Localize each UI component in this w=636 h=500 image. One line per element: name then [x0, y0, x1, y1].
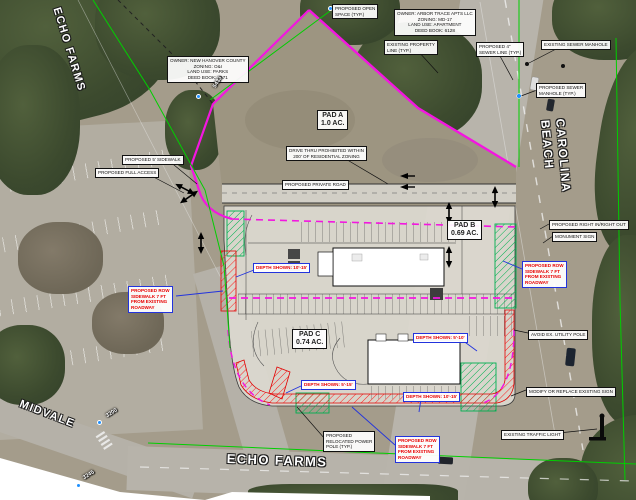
road-name-midvale: MIDVALE [17, 398, 77, 432]
note-row-sidewalk-left: PROPOSED ROW SIDEWALK 7 FT FROM EXISTING… [128, 286, 173, 313]
note-depth-south: DEPTH SHOWN: 10'-15' [403, 392, 460, 402]
note-owner-new-hanover: OWNER: NEW HANOVER COUNTY ZONING: O&I LA… [167, 56, 249, 83]
annotation-layer: PROPOSED OPEN SPACE (TYP.)OWNER: ARBOR T… [0, 0, 636, 500]
road-name-echo-farms-south: ECHO FARMS [226, 451, 327, 471]
label-pad-c: PAD C 0.74 AC. [292, 329, 327, 349]
note-monument-sign: MONUMENT SIGN [552, 232, 597, 242]
address-marker-dot [196, 94, 201, 99]
address-label-3245: 3245 [82, 470, 96, 482]
note-proposed-sewer-manhole: PROPOSED SEWER MANHOLE (TYP.) [536, 83, 586, 98]
note-existing-traffic-light: EXISTING TRAFFIC LIGHT [501, 430, 564, 440]
note-depth-south-west: DEPTH SHOWN: 5'-15' [301, 380, 356, 390]
note-owner-arbor-trace: OWNER: ARBOR TRACE APTS LLC ZONING: MD-1… [394, 9, 476, 36]
note-proposed-5ft-sidewalk: PROPOSED 5' SIDEWALK [122, 155, 184, 165]
note-proposed-private-road: PROPOSED PRIVATE ROAD [282, 180, 349, 190]
note-right-in-right-out: PROPOSED RIGHT IN/RIGHT OUT [549, 220, 629, 230]
note-proposed-sewer-line: PROPOSED 4" SEWER LINE (TYP.) [476, 42, 524, 57]
note-relocated-power-pole: PROPOSED RELOCATED POWER POLE (TYP.) [323, 431, 375, 452]
note-existing-sewer-manhole: EXISTING SEWER MANHOLE [541, 40, 611, 50]
label-pad-b: PAD B 0.69 AC. [447, 220, 482, 240]
note-avoid-utility-pole: AVOID EX. UTILITY POLE [528, 330, 588, 340]
note-depth-west: DEPTH SHOWN: 10'-15' [253, 263, 310, 273]
site-plan-map: PROPOSED OPEN SPACE (TYP.)OWNER: ARBOR T… [0, 0, 636, 500]
note-existing-property-line: EXISTING PROPERTY LINE (TYP.) [384, 40, 438, 55]
note-proposed-open-space: PROPOSED OPEN SPACE (TYP.) [332, 4, 378, 19]
note-depth-east: DEPTH SHOWN: 5'-10' [413, 333, 468, 343]
note-row-sidewalk-right: PROPOSED ROW SIDEWALK 7 FT FROM EXISTING… [522, 261, 567, 288]
label-pad-a: PAD A 1.0 AC. [317, 110, 348, 130]
note-modify-existing-sign: MODIFY OR REPLACE EXISTING SIGN [526, 387, 616, 397]
note-drive-thru: DRIVE THRU PROHIBITED WITHIN 200' OF RES… [286, 146, 367, 161]
note-proposed-full-access: PROPOSED FULL ACCESS [95, 168, 159, 178]
road-name-echo-farms-north: ECHO FARMS [49, 6, 88, 94]
address-marker-dot [76, 483, 81, 488]
address-marker-dot [97, 420, 102, 425]
note-row-sidewalk-bottom: PROPOSED ROW SIDEWALK 7 FT FROM EXISTING… [395, 436, 440, 463]
address-label-3200: 3200 [105, 408, 119, 420]
road-name-carolina-beach: CAROLINA BEACH [537, 118, 573, 194]
